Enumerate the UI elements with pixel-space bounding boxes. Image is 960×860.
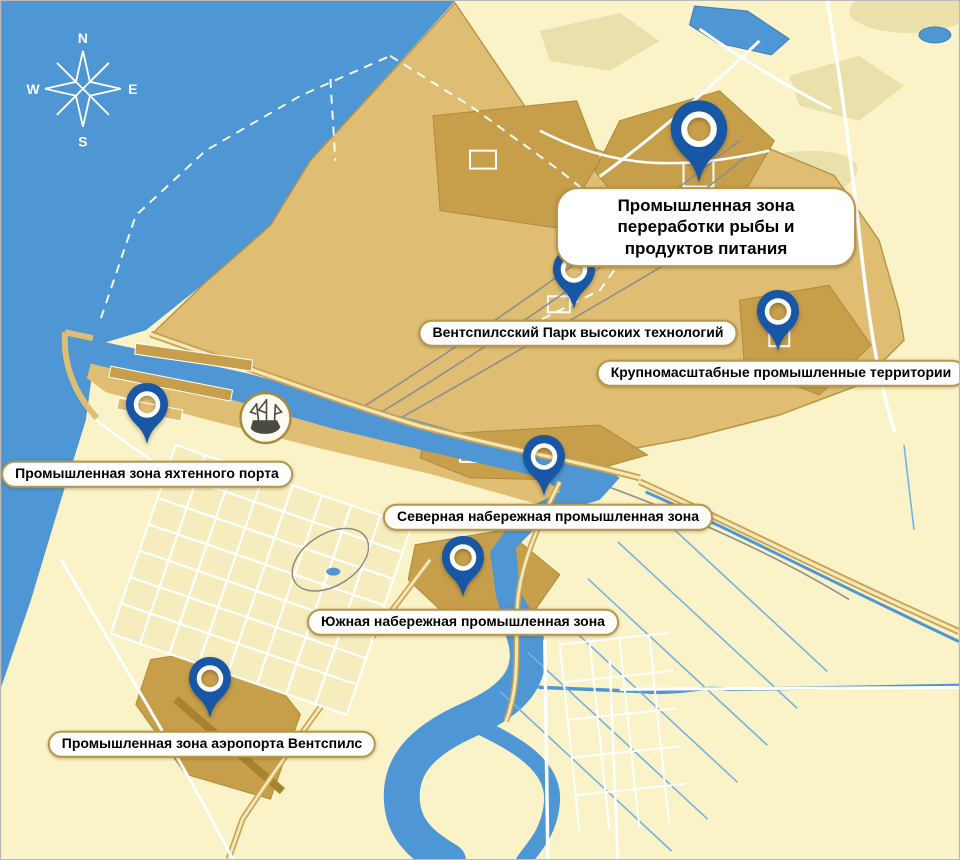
map-pin-north-embankment[interactable] <box>521 434 567 498</box>
zone-label-north-embankment: Северная набережная промышленная зона <box>383 504 713 531</box>
map-pin-large-scale[interactable] <box>755 289 801 353</box>
zone-label-yacht-port: Промышленная зона яхтенного порта <box>1 461 293 488</box>
zone-label-large-scale: Крупномасштабные промышленные территории <box>597 360 960 387</box>
zone-label-high-tech-park: Вентспилсский Парк высоких технологий <box>419 320 738 347</box>
map-pin-south-embankment[interactable] <box>440 535 486 599</box>
compass-e: E <box>128 81 137 97</box>
zone-label-airport: Промышленная зона аэропорта Вентспилс <box>48 731 376 758</box>
zone-label-south-embankment: Южная набережная промышленная зона <box>307 609 619 636</box>
map-pin-yacht-port[interactable] <box>124 382 170 446</box>
ventspils-industrial-zones-map: N E S W <box>0 0 960 860</box>
map-pin-fish-processing[interactable] <box>667 99 731 185</box>
compass-w: W <box>26 81 40 97</box>
ventspils-ship-emblem <box>241 393 291 443</box>
map-pin-airport[interactable] <box>187 656 233 720</box>
compass-n: N <box>78 30 88 46</box>
zone-label-fish-processing: Промышленная зона переработки рыбы и про… <box>556 187 856 267</box>
compass-s: S <box>78 134 87 150</box>
